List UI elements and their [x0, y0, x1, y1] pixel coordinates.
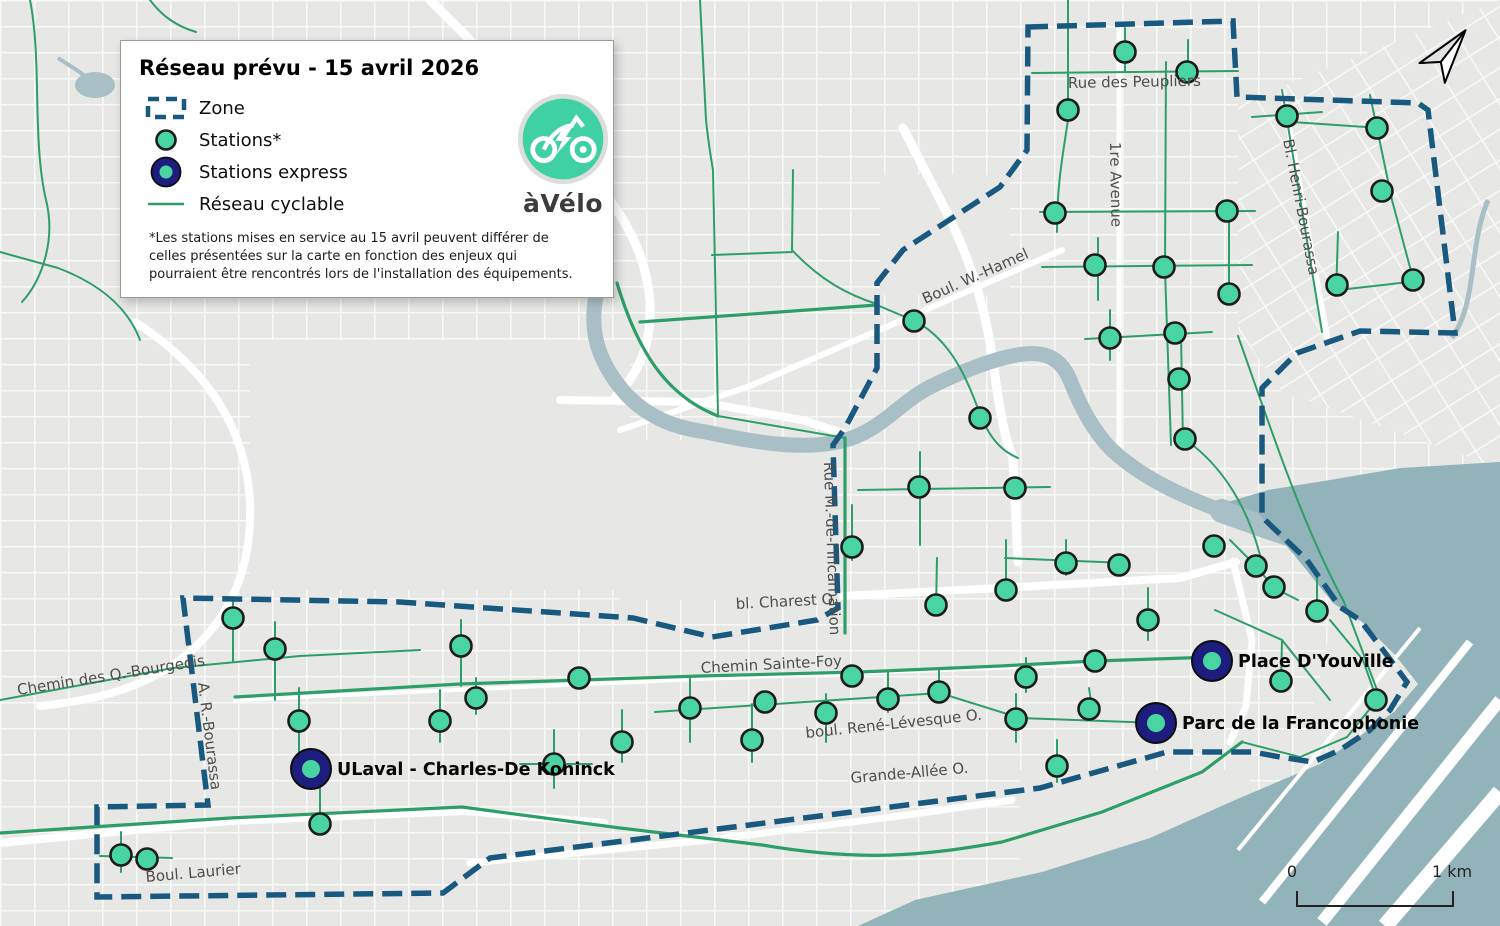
avelo-brand-text: àVélo	[473, 189, 653, 218]
station-swatch-icon	[143, 127, 189, 153]
station-marker	[1165, 323, 1186, 344]
legend-panel: Réseau prévu - 15 avril 2026 Zone Statio…	[120, 40, 614, 298]
station-marker	[1045, 203, 1066, 224]
station-marker	[926, 595, 947, 616]
express-station-label: ULaval - Charles-De Koninck	[337, 760, 615, 780]
station-marker	[1264, 577, 1285, 598]
scale-bar-end-label: 1 km	[1432, 862, 1472, 881]
station-marker	[1175, 429, 1196, 450]
station-marker	[310, 814, 331, 835]
express-station-marker-core	[302, 760, 320, 778]
station-marker	[1327, 275, 1348, 296]
station-marker	[289, 711, 310, 732]
station-marker	[929, 682, 950, 703]
street-label: Rue des Peupliers	[1068, 72, 1201, 92]
station-marker	[111, 845, 132, 866]
station-marker	[842, 537, 863, 558]
station-marker	[1403, 270, 1424, 291]
station-marker	[842, 666, 863, 687]
avelo-bike-icon	[515, 91, 611, 187]
station-marker	[1271, 671, 1292, 692]
open-area	[250, 340, 630, 590]
station-marker	[1372, 181, 1393, 202]
station-marker	[1058, 100, 1079, 121]
station-marker	[466, 688, 487, 709]
station-marker	[996, 580, 1017, 601]
open-area	[620, 440, 835, 600]
station-marker	[1217, 201, 1238, 222]
station-marker	[1138, 610, 1159, 631]
legend-item-label: Stations express	[199, 162, 348, 183]
station-marker	[1115, 42, 1136, 63]
station-marker	[1154, 257, 1175, 278]
station-marker	[1006, 709, 1027, 730]
station-marker	[1169, 369, 1190, 390]
station-marker	[1307, 601, 1328, 622]
station-marker	[265, 639, 286, 660]
station-marker	[1005, 478, 1026, 499]
station-marker	[1366, 690, 1387, 711]
station-marker	[430, 711, 451, 732]
station-marker	[1085, 255, 1106, 276]
station-marker	[1277, 106, 1298, 127]
station-marker	[878, 689, 899, 710]
station-marker	[1100, 328, 1121, 349]
express-station-label: Parc de la Francophonie	[1182, 714, 1419, 734]
station-marker	[909, 477, 930, 498]
station-marker	[1109, 555, 1130, 576]
zone-swatch-icon	[143, 95, 189, 121]
station-marker	[223, 608, 244, 629]
station-marker	[755, 692, 776, 713]
express-station-marker-core	[1203, 652, 1221, 670]
station-marker	[1047, 756, 1068, 777]
station-marker	[612, 732, 633, 753]
legend-item-label: Stations*	[199, 130, 281, 151]
station-marker	[1367, 118, 1388, 139]
station-marker	[569, 668, 590, 689]
scale-bar-start-label: 0	[1287, 862, 1297, 881]
station-marker	[1204, 536, 1225, 557]
station-marker	[970, 408, 991, 429]
station-marker	[1246, 556, 1267, 577]
legend-footnote: *Les stations mises en service au 15 avr…	[149, 230, 581, 285]
station-marker	[742, 730, 763, 751]
street-label: 1re Avenue	[1106, 142, 1125, 227]
station-marker	[1079, 699, 1100, 720]
legend-item-label: Zone	[199, 98, 245, 119]
station-marker	[1085, 651, 1106, 672]
avelo-network-map: ULaval - Charles-De KoninckParc de la Fr…	[0, 0, 1500, 926]
station-marker	[1219, 284, 1240, 305]
station-marker	[1056, 553, 1077, 574]
station-marker	[680, 698, 701, 719]
bike-path-swatch-icon	[143, 191, 189, 217]
station-marker	[1016, 667, 1037, 688]
legend-title: Réseau prévu - 15 avril 2026	[139, 56, 613, 80]
station-marker	[904, 311, 925, 332]
express-station-marker-core	[1147, 714, 1165, 732]
station-marker	[451, 636, 472, 657]
legend-item-label: Réseau cyclable	[199, 194, 344, 215]
express-station-swatch-icon	[143, 156, 189, 188]
express-station-label: Place D'Youville	[1238, 652, 1394, 672]
avelo-logo: àVélo	[473, 91, 653, 218]
